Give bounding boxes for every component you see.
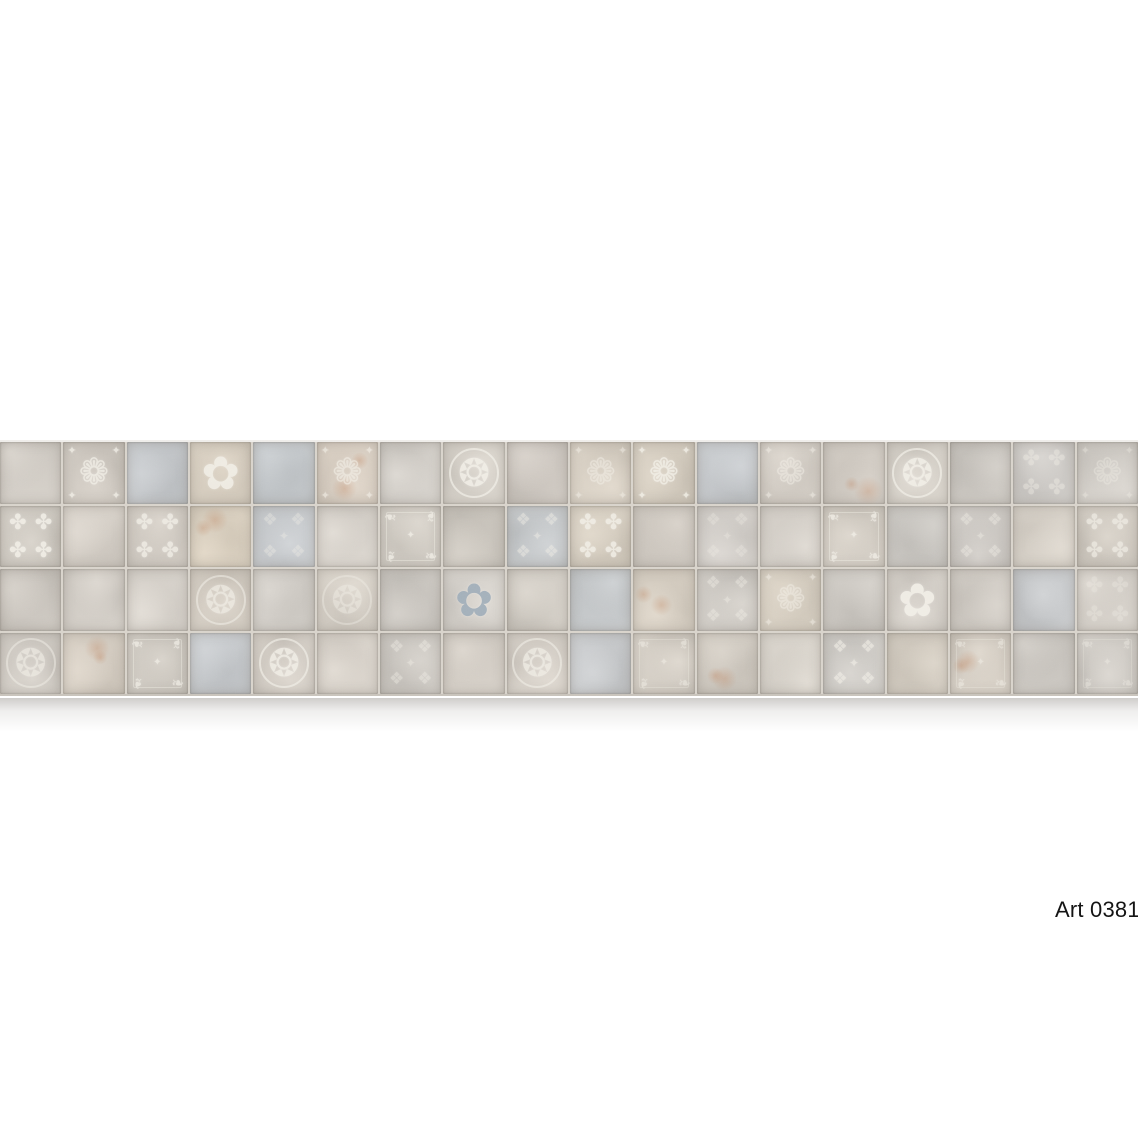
quatrefoil-ornament-icon: ✤✤✤✤ — [1077, 569, 1138, 631]
tile — [507, 442, 568, 504]
tile — [633, 506, 694, 568]
panel-drop-shadow — [0, 698, 1138, 732]
tile: ❁✦✦✦✦ — [760, 569, 821, 631]
damask-ornament-icon: ❁✦✦✦✦ — [317, 442, 378, 504]
damask-ornament-icon: ❁✦✦✦✦ — [570, 442, 631, 504]
tile: ❖❖❖❖✦ — [823, 633, 884, 695]
tile — [127, 569, 188, 631]
tile — [760, 506, 821, 568]
damask-ornament-icon: ❁✦✦✦✦ — [633, 442, 694, 504]
tile — [633, 569, 694, 631]
tile: ❁✦✦✦✦ — [760, 442, 821, 504]
lattice-ornament-icon: ❖❖❖❖✦ — [380, 633, 441, 695]
quatrefoil-ornament-icon: ✤✤✤✤ — [1013, 442, 1074, 504]
tile: ✿ — [443, 569, 504, 631]
tile — [1013, 506, 1074, 568]
tile-grid: ❁✦✦✦✦✿❁✦✦✦✦❂❁✦✦✦✦❁✦✦✦✦❁✦✦✦✦❂✤✤✤✤❁✦✦✦✦✤✤✤… — [0, 440, 1138, 696]
frame-ornament-icon: ❧❧❧❧✦ — [633, 633, 694, 695]
damask-ornament-icon: ❁✦✦✦✦ — [760, 569, 821, 631]
tile — [1013, 633, 1074, 695]
tile: ❁✦✦✦✦ — [63, 442, 124, 504]
tile: ✿ — [887, 569, 948, 631]
damask-ornament-icon: ❁✦✦✦✦ — [760, 442, 821, 504]
tile — [190, 633, 251, 695]
lattice-ornament-icon: ❖❖❖❖✦ — [697, 569, 758, 631]
medallion-ornament-icon: ❂ — [443, 442, 504, 504]
tile: ❂ — [887, 442, 948, 504]
tile: ❁✦✦✦✦ — [317, 442, 378, 504]
tile: ❖❖❖❖✦ — [697, 506, 758, 568]
quatrefoil-ornament-icon: ✤✤✤✤ — [1077, 506, 1138, 568]
tile — [63, 506, 124, 568]
frame-ornament-icon: ❧❧❧❧✦ — [823, 506, 884, 568]
frame-ornament-icon: ❧❧❧❧✦ — [127, 633, 188, 695]
tile: ✤✤✤✤ — [127, 506, 188, 568]
tile — [443, 633, 504, 695]
tile — [63, 633, 124, 695]
tile — [887, 633, 948, 695]
tile: ❂ — [190, 569, 251, 631]
lattice-ornament-icon: ❖❖❖❖✦ — [823, 633, 884, 695]
tile: ❂ — [443, 442, 504, 504]
tile: ❁✦✦✦✦ — [570, 442, 631, 504]
tile: ❂ — [317, 569, 378, 631]
tile — [63, 569, 124, 631]
tile: ❧❧❧❧✦ — [380, 506, 441, 568]
tile — [887, 506, 948, 568]
fleur-ornament-icon: ✿ — [190, 442, 251, 504]
tile: ❁✦✦✦✦ — [1077, 442, 1138, 504]
tile — [0, 569, 61, 631]
tile — [697, 633, 758, 695]
tile — [253, 569, 314, 631]
tile — [570, 569, 631, 631]
medallion-ornament-icon: ❂ — [887, 442, 948, 504]
medallion-ornament-icon: ❂ — [507, 633, 568, 695]
tile: ❁✦✦✦✦ — [633, 442, 694, 504]
tile — [380, 569, 441, 631]
tile: ❖❖❖❖✦ — [380, 633, 441, 695]
tile: ❧❧❧❧✦ — [633, 633, 694, 695]
tile: ✤✤✤✤ — [1013, 442, 1074, 504]
tile: ❧❧❧❧✦ — [1077, 633, 1138, 695]
tile: ✿ — [190, 442, 251, 504]
quatrefoil-ornament-icon: ✤✤✤✤ — [127, 506, 188, 568]
tile — [0, 442, 61, 504]
tile: ❂ — [253, 633, 314, 695]
tile: ❧❧❧❧✦ — [950, 633, 1011, 695]
tile: ❖❖❖❖✦ — [507, 506, 568, 568]
damask-ornament-icon: ❁✦✦✦✦ — [63, 442, 124, 504]
tile — [950, 569, 1011, 631]
medallion-ornament-icon: ❂ — [0, 633, 61, 695]
lattice-ornament-icon: ❖❖❖❖✦ — [950, 506, 1011, 568]
tile — [760, 633, 821, 695]
page-background: { "page": { "background": "#ffffff" }, "… — [0, 0, 1138, 1138]
tile — [317, 633, 378, 695]
tile — [823, 569, 884, 631]
medallion-ornament-icon: ❂ — [253, 633, 314, 695]
tile — [1013, 569, 1074, 631]
tile — [570, 633, 631, 695]
tile — [443, 506, 504, 568]
tile — [697, 442, 758, 504]
tile: ❧❧❧❧✦ — [823, 506, 884, 568]
tile: ✤✤✤✤ — [570, 506, 631, 568]
lattice-ornament-icon: ❖❖❖❖✦ — [253, 506, 314, 568]
quatrefoil-ornament-icon: ✤✤✤✤ — [0, 506, 61, 568]
tile — [950, 442, 1011, 504]
tile — [507, 569, 568, 631]
quatrefoil-ornament-icon: ✤✤✤✤ — [570, 506, 631, 568]
frame-ornament-icon: ❧❧❧❧✦ — [1077, 633, 1138, 695]
tile: ✤✤✤✤ — [0, 506, 61, 568]
tile — [823, 442, 884, 504]
frame-ornament-icon: ❧❧❧❧✦ — [950, 633, 1011, 695]
fleur-ornament-icon: ✿ — [887, 569, 948, 631]
article-label-text: Art 0381 — [1055, 897, 1138, 923]
tile: ✤✤✤✤ — [1077, 506, 1138, 568]
lattice-ornament-icon: ❖❖❖❖✦ — [697, 506, 758, 568]
tile: ❂ — [507, 633, 568, 695]
article-label: Art 0381 — [1048, 894, 1138, 925]
tile — [317, 506, 378, 568]
tile: ❖❖❖❖✦ — [950, 506, 1011, 568]
damask-ornament-icon: ❁✦✦✦✦ — [1077, 442, 1138, 504]
frame-ornament-icon: ❧❧❧❧✦ — [380, 506, 441, 568]
medallion-ornament-icon: ❂ — [190, 569, 251, 631]
tile — [380, 442, 441, 504]
tile: ❖❖❖❖✦ — [697, 569, 758, 631]
tile — [127, 442, 188, 504]
tile-panel: ❁✦✦✦✦✿❁✦✦✦✦❂❁✦✦✦✦❁✦✦✦✦❁✦✦✦✦❂✤✤✤✤❁✦✦✦✦✤✤✤… — [0, 438, 1138, 696]
fleur-ornament-icon: ✿ — [443, 569, 504, 631]
lattice-ornament-icon: ❖❖❖❖✦ — [507, 506, 568, 568]
medallion-ornament-icon: ❂ — [317, 569, 378, 631]
tile — [190, 506, 251, 568]
tile: ❧❧❧❧✦ — [127, 633, 188, 695]
tile: ❂ — [0, 633, 61, 695]
tile: ✤✤✤✤ — [1077, 569, 1138, 631]
tile — [253, 442, 314, 504]
tile: ❖❖❖❖✦ — [253, 506, 314, 568]
